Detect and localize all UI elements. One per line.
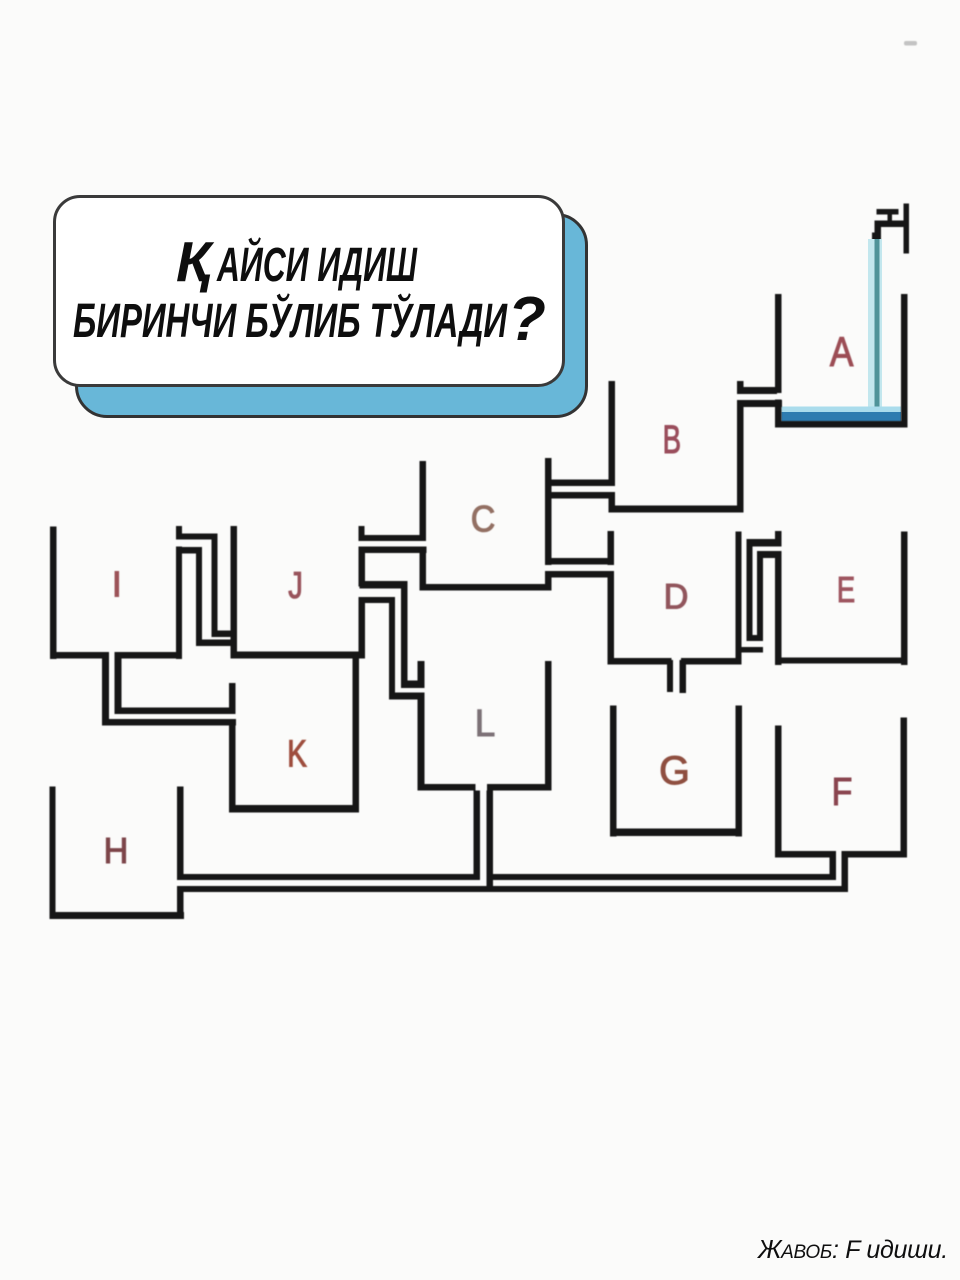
svg-text:Қ: Қ (176, 230, 215, 294)
svg-text:?: ? (508, 285, 546, 354)
svg-text:БИРИНЧИ БЎЛИБ ТЎЛАДИ: БИРИНЧИ БЎЛИБ ТЎЛАДИ (73, 292, 508, 348)
svg-text:АЙСИ ИДИШ: АЙСИ ИДИШ (216, 237, 417, 292)
svg-text:ЖАВОБ: F идиши.: ЖАВОБ: F идиши. (756, 1236, 948, 1264)
